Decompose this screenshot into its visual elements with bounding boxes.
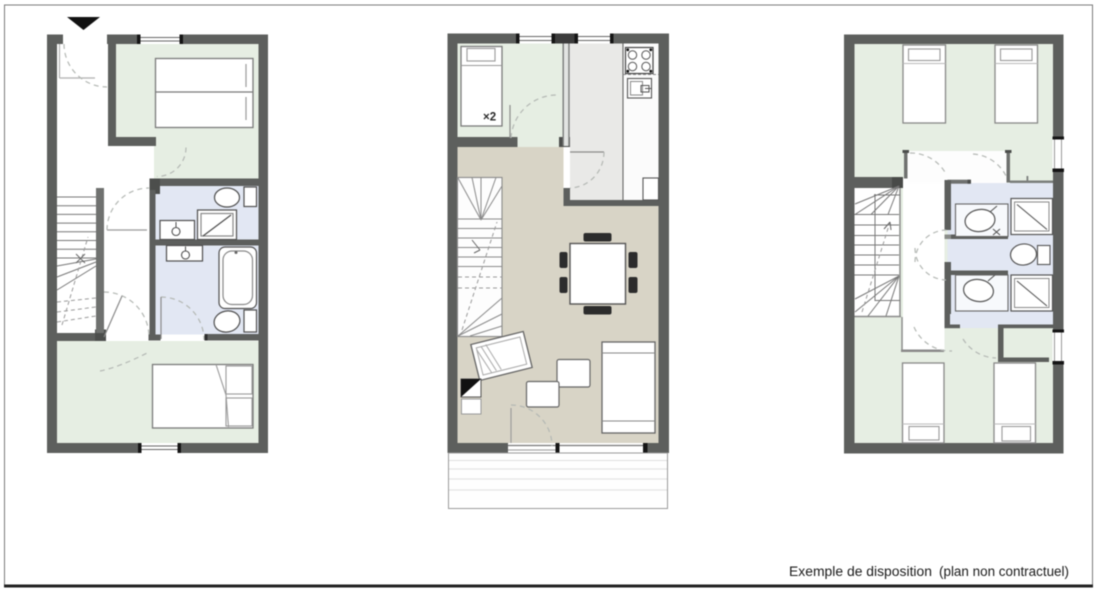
svg-text:Exemple de disposition: Exemple de disposition [789,564,932,579]
svg-text:(plan non contractuel): (plan non contractuel) [939,564,1069,579]
svg-text:×2: ×2 [483,112,496,124]
